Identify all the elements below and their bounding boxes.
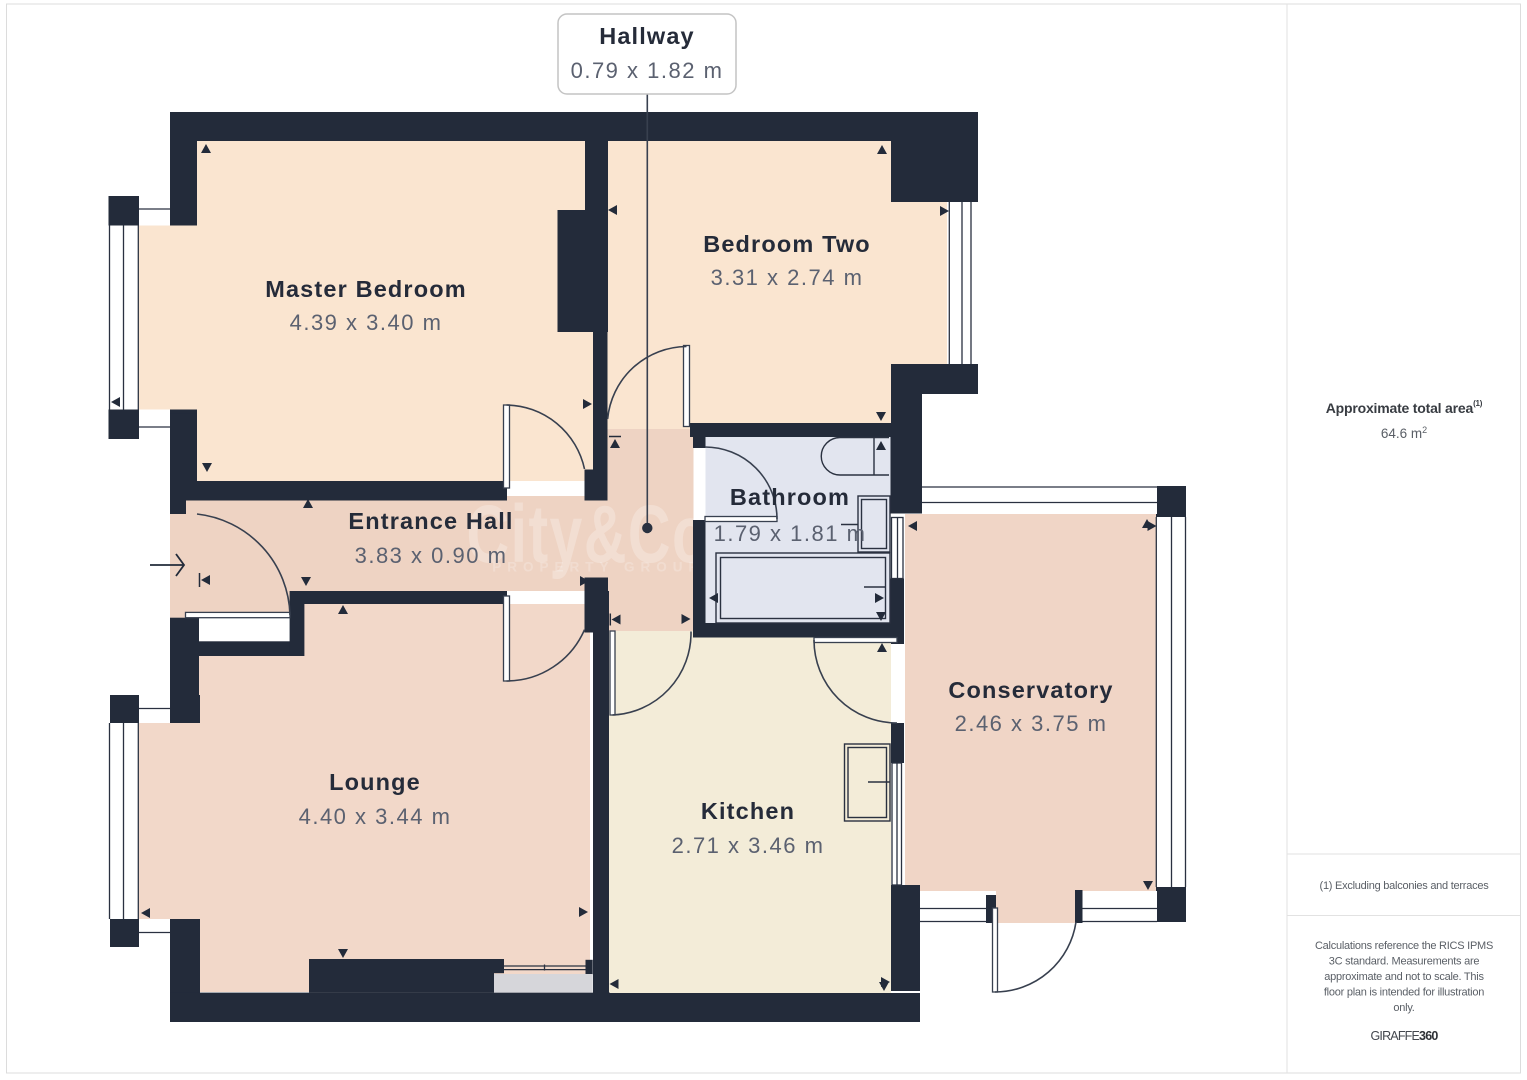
svg-text:3C standard. Measurements are: 3C standard. Measurements are	[1329, 956, 1480, 968]
svg-text:64.6 m2: 64.6 m2	[1381, 425, 1427, 441]
svg-text:Calculations reference the RIC: Calculations reference the RICS IPMS	[1315, 940, 1493, 952]
svg-text:4.39 x 3.40 m: 4.39 x 3.40 m	[290, 310, 443, 335]
svg-text:Conservatory: Conservatory	[948, 677, 1113, 703]
svg-text:only.: only.	[1393, 1002, 1414, 1014]
svg-text:2.71 x 3.46 m: 2.71 x 3.46 m	[672, 833, 825, 858]
svg-text:Master Bedroom: Master Bedroom	[265, 276, 467, 302]
svg-text:floor plan is intended for ill: floor plan is intended for illustration	[1324, 987, 1484, 999]
svg-text:Lounge: Lounge	[329, 769, 421, 795]
svg-text:3.83 x 0.90 m: 3.83 x 0.90 m	[355, 543, 508, 568]
svg-text:(1) Excluding balconies and te: (1) Excluding balconies and terraces	[1320, 880, 1490, 892]
svg-text:3.31 x 2.74 m: 3.31 x 2.74 m	[711, 265, 864, 290]
svg-text:PROPERTY GROUP: PROPERTY GROUP	[492, 560, 703, 575]
svg-text:2.46 x 3.75 m: 2.46 x 3.75 m	[955, 711, 1108, 736]
svg-text:Approximate total area(1): Approximate total area(1)	[1326, 399, 1483, 416]
svg-text:4.40 x 3.44 m: 4.40 x 3.44 m	[299, 804, 452, 829]
svg-text:Kitchen: Kitchen	[701, 798, 795, 824]
svg-text:Hallway: Hallway	[599, 23, 695, 49]
svg-text:approximate and not to scale.: approximate and not to scale. This	[1324, 971, 1484, 983]
svg-text:Entrance Hall: Entrance Hall	[348, 508, 513, 534]
svg-text:Bedroom Two: Bedroom Two	[703, 231, 871, 257]
svg-text:GIRAFFE360: GIRAFFE360	[1370, 1029, 1438, 1043]
svg-text:1.79 x 1.81 m: 1.79 x 1.81 m	[714, 521, 867, 546]
svg-text:0.79 x 1.82 m: 0.79 x 1.82 m	[571, 58, 724, 83]
svg-text:Bathroom: Bathroom	[730, 484, 850, 510]
